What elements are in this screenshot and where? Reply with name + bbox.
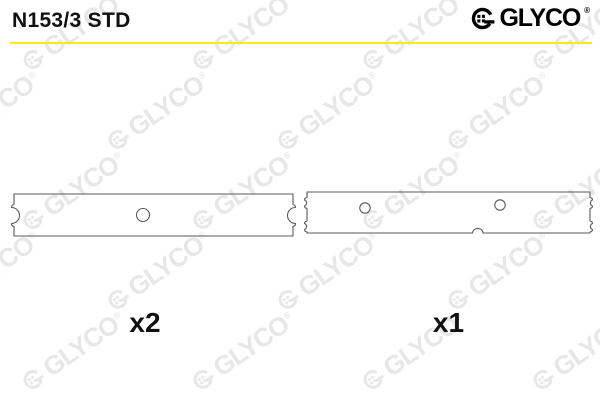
catalog-product-image: GLYCO® GLYCO® GLYCO® GLYCO® GLYCO® GLYCO… — [0, 0, 600, 400]
oil-hole — [495, 200, 505, 210]
oil-hole — [137, 209, 150, 222]
oil-hole — [360, 203, 370, 213]
quantity-label-strip-1: x2 — [90, 309, 200, 337]
brand-logo: GLYCO ® — [471, 6, 590, 31]
glyco-logo-icon — [471, 7, 495, 31]
glyco-logo-icon — [471, 7, 495, 31]
quantity-label-strip-2: x1 — [398, 309, 499, 337]
header-divider — [10, 42, 592, 44]
part-drawings — [0, 0, 600, 400]
part-number: N153/3 STD — [12, 9, 131, 33]
strip-drawing-2 — [305, 192, 593, 233]
registered-trademark-mark: ® — [584, 7, 590, 15]
brand-name: GLYCO — [499, 6, 580, 31]
strip-drawing-1 — [12, 194, 296, 236]
